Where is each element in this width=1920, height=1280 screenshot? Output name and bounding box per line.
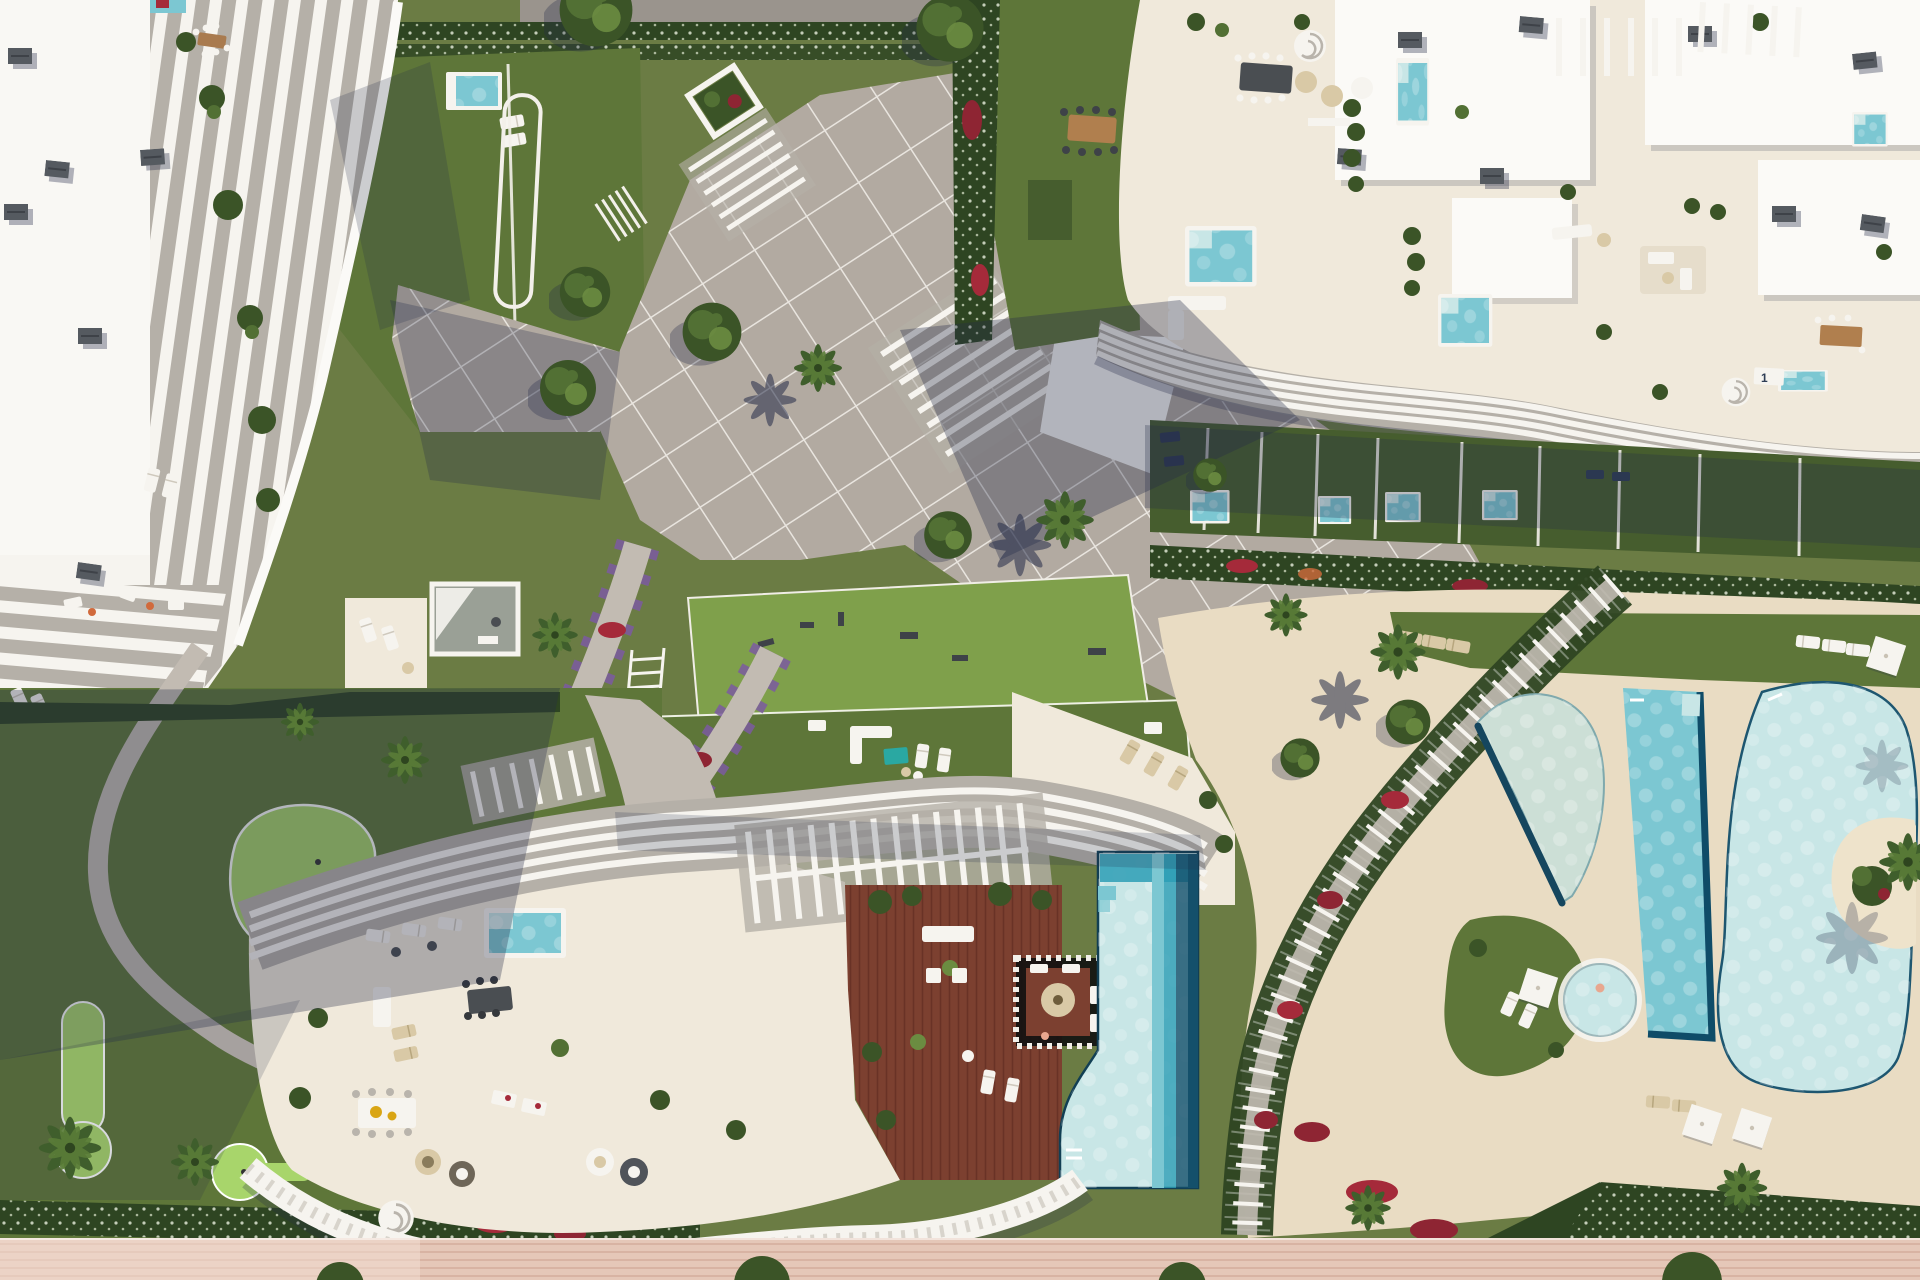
lagoon-pool — [1718, 682, 1917, 1092]
sign-number: 1 — [1761, 371, 1768, 385]
rooftop-deck-pool — [845, 852, 1198, 1188]
pool-level-sign: 1 — [1754, 367, 1785, 386]
aerial-render: 1 — [0, 0, 1920, 1280]
palm-shadow — [744, 374, 797, 427]
north-lawn-strip — [952, 0, 1140, 350]
swimmer — [1596, 984, 1605, 993]
beach-boardwalk — [0, 1238, 1920, 1280]
palm-tree — [1370, 624, 1425, 679]
palm-tree — [1264, 593, 1307, 636]
palm-tree — [1345, 1185, 1391, 1231]
palm-tree — [381, 736, 429, 784]
spiral-stair — [1294, 30, 1326, 62]
garden-shed — [432, 584, 518, 654]
green-shed — [1028, 180, 1072, 240]
palm-tree — [794, 344, 842, 392]
palm-tree — [281, 703, 319, 741]
palm-shadow — [1311, 671, 1369, 729]
south-wing-fins — [0, 585, 228, 700]
kids-pool — [1558, 958, 1642, 1042]
palm-tree — [171, 1138, 219, 1186]
lagoon-pool-area — [1158, 585, 1920, 1262]
palm-tree — [1717, 1163, 1767, 1213]
roof-parasol — [156, 0, 169, 8]
palm-tree — [1036, 491, 1094, 549]
palm-tree — [39, 1117, 101, 1179]
lounge-pit — [1016, 958, 1100, 1046]
deck-bench — [922, 926, 974, 942]
scene-canvas: 1 — [0, 0, 1920, 1280]
spiral-stair — [1722, 378, 1751, 407]
palm-tree — [532, 612, 578, 658]
